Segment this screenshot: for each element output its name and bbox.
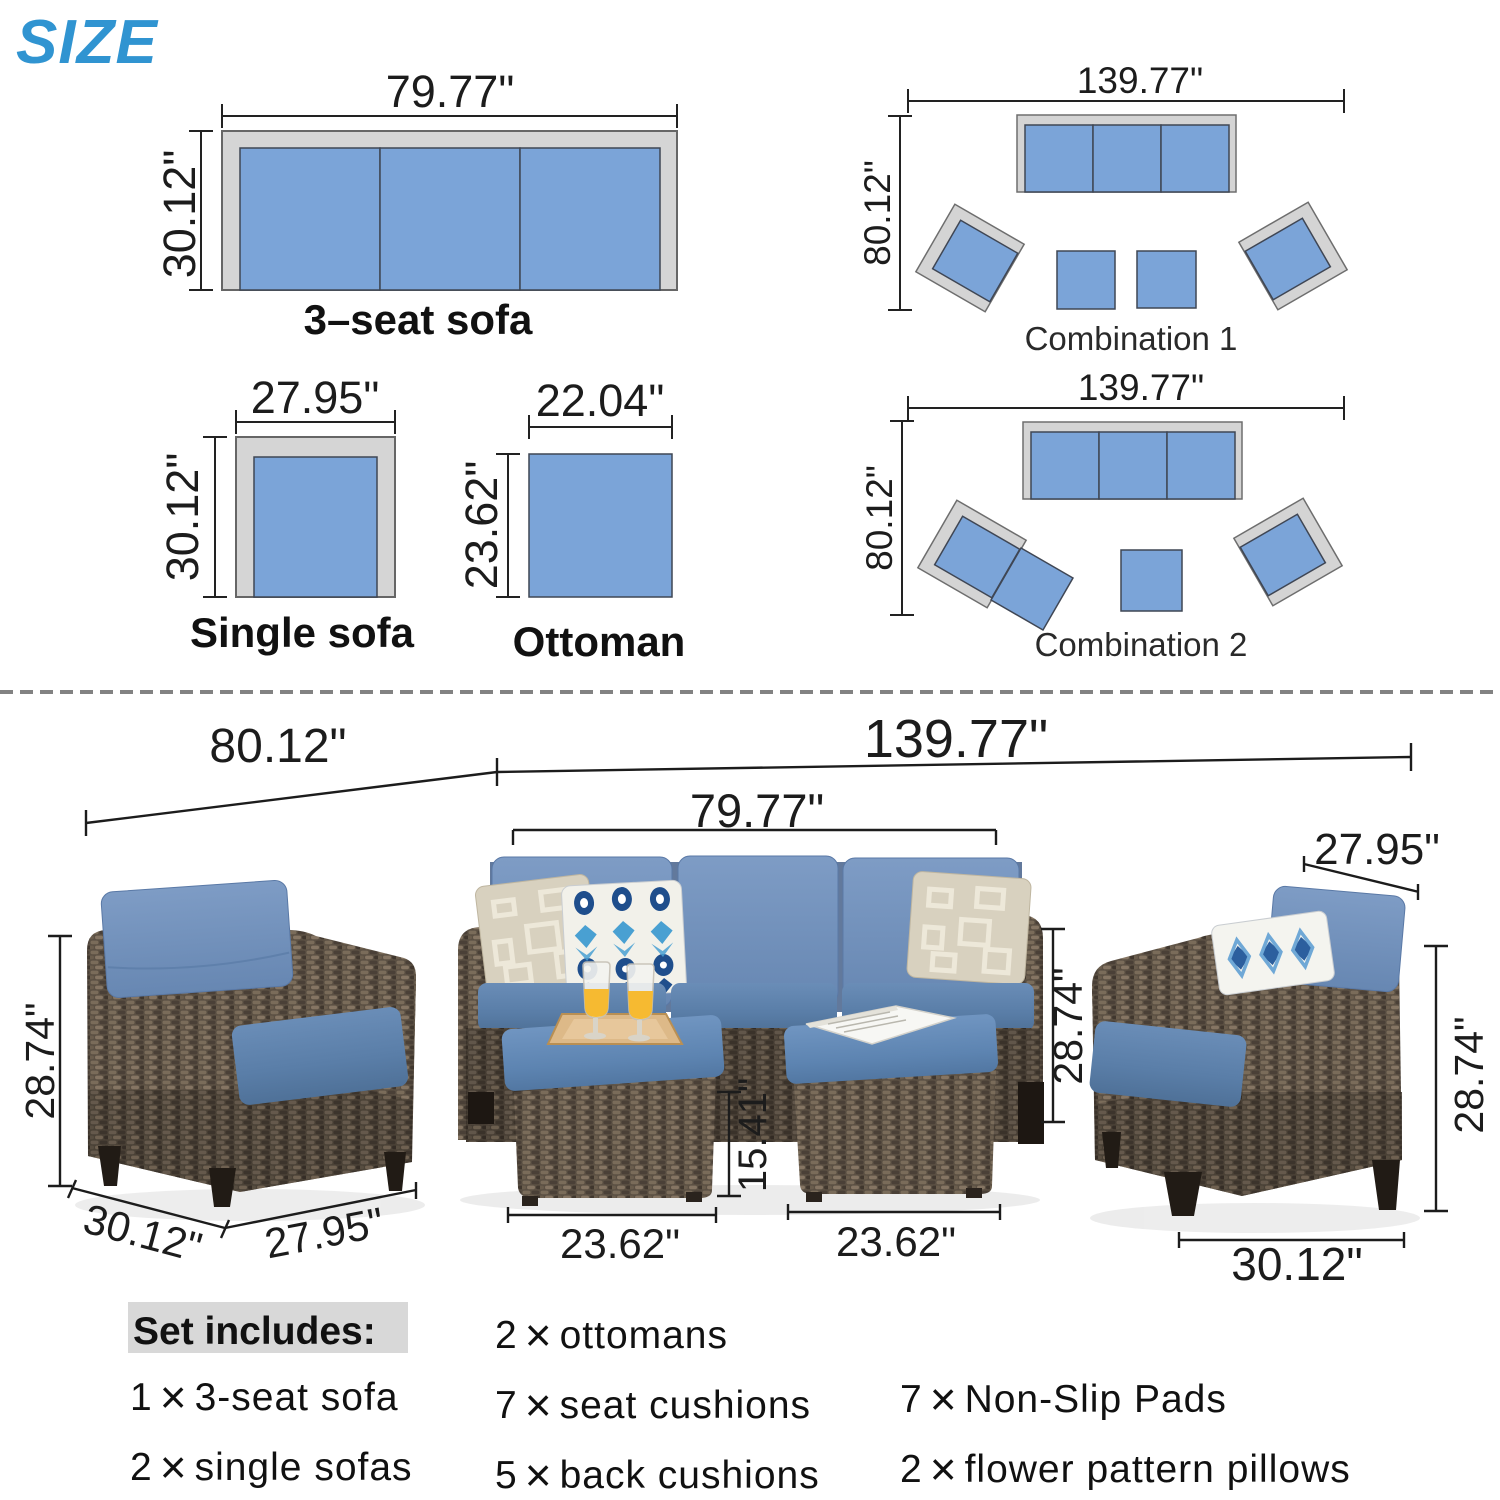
svg-text:7×seat cushions: 7×seat cushions xyxy=(495,1379,811,1431)
svg-text:1×3-seat sofa: 1×3-seat sofa xyxy=(130,1371,399,1423)
svg-text:2×flower pattern pillows: 2×flower pattern pillows xyxy=(900,1443,1351,1495)
svg-text:Set includes:: Set includes: xyxy=(133,1310,376,1353)
svg-text:15.41": 15.41" xyxy=(731,1078,775,1192)
svg-text:80.12": 80.12" xyxy=(859,465,900,571)
svg-text:3–seat sofa: 3–seat sofa xyxy=(304,296,533,343)
svg-text:SIZE: SIZE xyxy=(16,8,158,77)
svg-text:139.77": 139.77" xyxy=(1077,60,1203,101)
svg-text:30.12": 30.12" xyxy=(157,453,208,582)
svg-text:5×back cushions: 5×back cushions xyxy=(495,1449,820,1500)
svg-text:22.04": 22.04" xyxy=(536,375,665,426)
svg-text:Combination 1: Combination 1 xyxy=(1025,320,1238,357)
svg-text:Ottoman: Ottoman xyxy=(513,618,686,665)
svg-text:27.95": 27.95" xyxy=(251,372,380,423)
svg-text:30.12": 30.12" xyxy=(1231,1238,1362,1290)
svg-text:80.12": 80.12" xyxy=(209,720,346,773)
svg-text:30.12": 30.12" xyxy=(154,150,205,279)
svg-text:Single sofa: Single sofa xyxy=(190,609,415,656)
svg-text:2×single sofas: 2×single sofas xyxy=(130,1441,413,1493)
svg-text:28.74": 28.74" xyxy=(1446,1016,1492,1133)
svg-text:79.77": 79.77" xyxy=(386,66,515,117)
svg-text:79.77": 79.77" xyxy=(690,784,824,837)
svg-text:7×Non-Slip Pads: 7×Non-Slip Pads xyxy=(900,1373,1227,1425)
svg-text:28.74": 28.74" xyxy=(1045,967,1091,1084)
svg-text:Combination 2: Combination 2 xyxy=(1035,626,1248,663)
svg-text:27.95": 27.95" xyxy=(1314,825,1440,874)
svg-text:2×ottomans: 2×ottomans xyxy=(495,1309,728,1361)
svg-text:23.62": 23.62" xyxy=(836,1218,956,1265)
svg-text:80.12": 80.12" xyxy=(857,160,898,266)
svg-text:23.62": 23.62" xyxy=(456,461,507,590)
svg-text:139.77": 139.77" xyxy=(864,709,1048,769)
svg-text:28.74": 28.74" xyxy=(17,1002,63,1119)
svg-text:139.77": 139.77" xyxy=(1078,367,1204,408)
svg-text:23.62": 23.62" xyxy=(560,1220,680,1267)
